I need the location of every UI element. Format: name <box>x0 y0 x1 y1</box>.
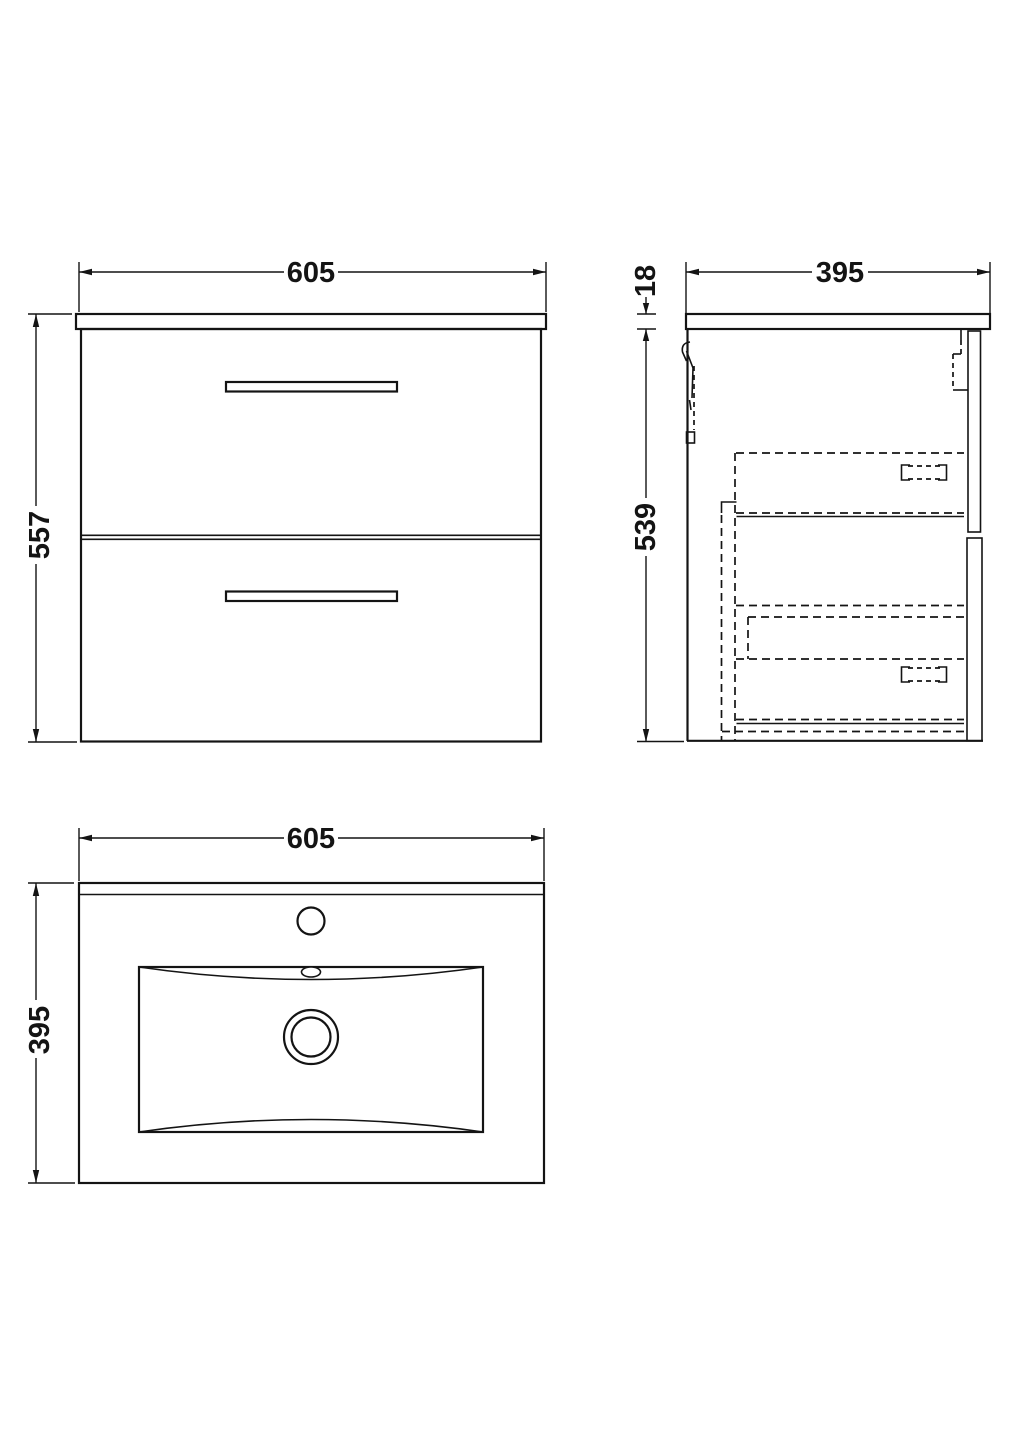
side-thickness-label: 18 <box>630 265 662 297</box>
side-countertop <box>686 314 990 329</box>
side-back-panel <box>967 331 982 741</box>
plan-basin <box>139 967 483 1132</box>
plan-view: 605 395 <box>24 823 544 1183</box>
arrowhead <box>643 729 649 742</box>
front-height-label: 557 <box>24 511 56 559</box>
arrowhead <box>33 1170 39 1183</box>
arrowhead <box>33 883 39 896</box>
countertop-edge <box>79 883 544 1183</box>
plan-faucet-hole <box>298 908 325 935</box>
plan-width-dimension: 605 <box>79 823 544 881</box>
side-drawer-box-1 <box>736 453 964 517</box>
runner-cap-right <box>938 667 947 682</box>
basin-rim <box>139 967 483 1132</box>
arrowhead <box>79 835 92 841</box>
front-drawer-handle-1 <box>226 382 397 392</box>
arrowhead <box>686 269 699 275</box>
side-height-dimension: 539 <box>630 329 684 742</box>
side-wall-bracket-rear <box>953 329 968 390</box>
technical-drawing: 605 557 <box>0 0 1024 1449</box>
side-cabinet-outline <box>687 329 983 741</box>
side-view: 395 18 539 <box>630 257 990 742</box>
side-depth-label: 395 <box>816 257 864 289</box>
plan-countertop-outline <box>79 883 544 1183</box>
arrowhead <box>533 269 546 275</box>
drawing-sheet: 605 557 <box>0 0 1024 1449</box>
side-depth-dimension: 395 <box>686 257 990 313</box>
runner-cap-left <box>902 667 911 682</box>
arrowhead <box>531 835 544 841</box>
runner-cap-right <box>938 465 947 480</box>
arrowhead <box>33 314 39 327</box>
arrowhead <box>33 729 39 742</box>
front-width-label: 605 <box>287 257 335 289</box>
arrowhead <box>643 303 649 314</box>
runner-cap-left <box>902 465 911 480</box>
front-height-dimension: 557 <box>24 314 77 742</box>
front-view: 605 557 <box>24 257 546 742</box>
arrowhead <box>977 269 990 275</box>
waste-drain-inner <box>292 1018 331 1057</box>
side-height-label: 539 <box>630 503 662 551</box>
front-countertop <box>76 314 546 329</box>
overflow-hole <box>302 967 321 977</box>
arrowhead <box>79 269 92 275</box>
front-drawer-handle-2 <box>226 592 397 602</box>
plan-depth-dimension: 395 <box>24 883 75 1183</box>
side-drawer-runner-1 <box>902 465 947 480</box>
bracket-tick <box>690 400 692 410</box>
back-panel-lower <box>967 538 982 741</box>
front-width-dimension: 605 <box>79 257 546 312</box>
side-drawer-runner-2 <box>902 667 947 682</box>
plan-width-label: 605 <box>287 823 335 855</box>
basin-front-slope <box>139 1120 483 1133</box>
plan-depth-label: 395 <box>24 1006 56 1054</box>
back-panel-upper <box>968 331 981 532</box>
